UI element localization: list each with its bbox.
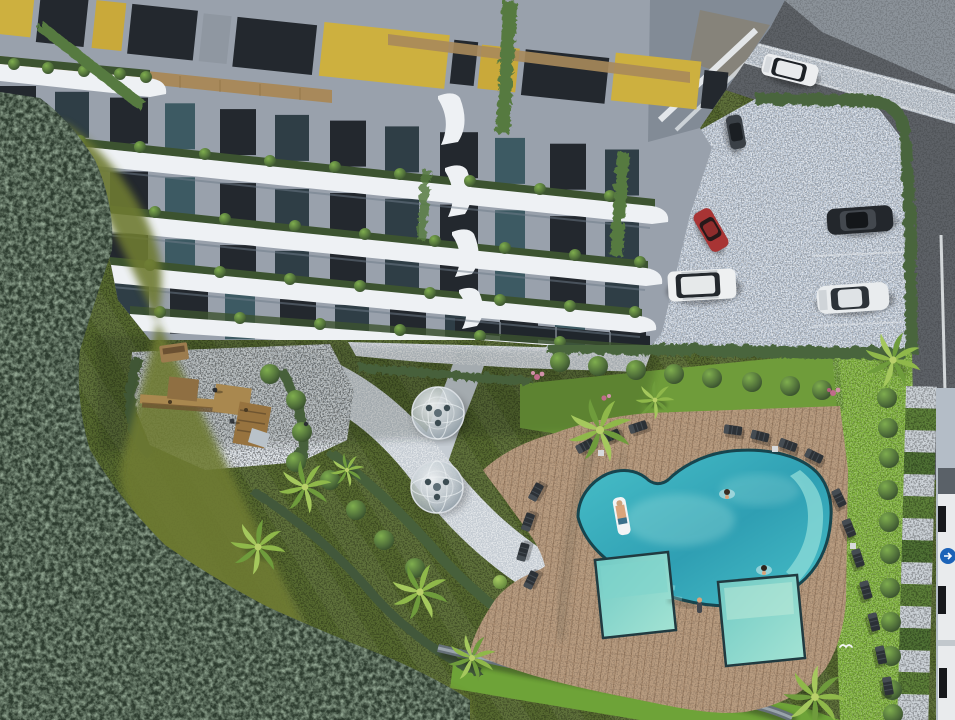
swimmer — [719, 489, 735, 499]
truck-wheel — [939, 668, 947, 698]
aerial-render-stage — [0, 0, 955, 720]
truck-wheel — [938, 506, 946, 532]
side-table — [850, 543, 856, 549]
delivery-truck — [938, 468, 955, 720]
truck-wheel — [938, 586, 946, 614]
side-table — [772, 446, 778, 452]
side-table — [598, 450, 604, 456]
aerial-render — [0, 0, 955, 720]
swimmer — [756, 565, 772, 575]
garden-hedge — [545, 346, 903, 352]
